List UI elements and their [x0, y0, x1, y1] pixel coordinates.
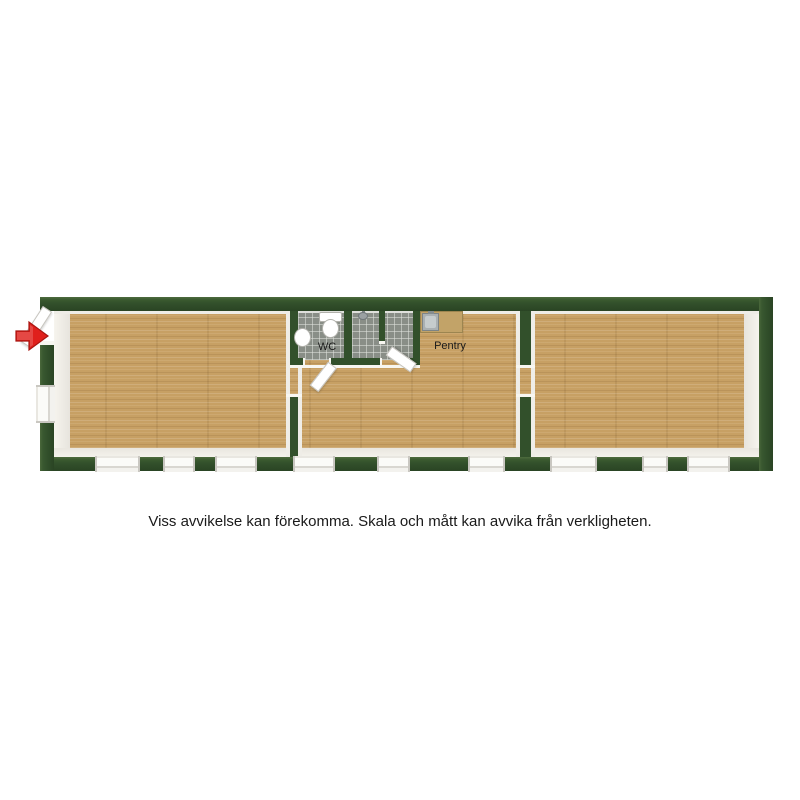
disclaimer-text: Viss avvikelse kan förekomma. Skala och …: [0, 513, 800, 530]
wc-shower-divider-wall: [344, 311, 352, 358]
entrance-arrow-icon: [14, 319, 50, 353]
opening-jamb: [286, 394, 302, 397]
floor-plan: WC Pentry Viss avvikelse kan förekomma. …: [0, 0, 800, 800]
window: [377, 456, 410, 472]
pentry-label: Pentry: [426, 340, 474, 352]
toilet-bowl: [322, 319, 339, 338]
window: [468, 456, 505, 472]
wall-face-right: [744, 311, 759, 457]
window: [95, 456, 140, 472]
window: [293, 456, 335, 472]
outer-wall-right: [759, 297, 773, 471]
wc-sink: [294, 328, 311, 347]
partition-wall-2: [520, 397, 531, 457]
outer-wall-left: [40, 423, 54, 471]
shower-east-wall: [413, 311, 420, 365]
door-jamb: [380, 358, 382, 365]
window: [550, 456, 597, 472]
partition-wall-1: [290, 397, 298, 457]
window: [215, 456, 257, 472]
wc-label: WC: [310, 341, 344, 353]
wet-south-wall: [331, 358, 380, 365]
window: [163, 456, 195, 472]
wet-south-wall: [290, 358, 303, 365]
shower-partition-wall: [379, 311, 385, 341]
shower-head-icon: [358, 312, 368, 320]
wall-cap: [379, 341, 385, 344]
pentry-faucet: [428, 311, 434, 314]
outer-wall-top: [40, 297, 773, 311]
opening-jamb: [516, 394, 535, 397]
opening-jamb: [516, 365, 535, 368]
partition-wall-2: [520, 311, 531, 365]
window: [687, 456, 730, 472]
wall-edge: [298, 365, 302, 457]
wall-face-left: [54, 311, 70, 457]
window: [36, 385, 55, 423]
door-jamb: [303, 358, 305, 365]
pentry-sink-basin: [425, 316, 436, 328]
wall-edge: [531, 311, 535, 457]
window: [642, 456, 668, 472]
